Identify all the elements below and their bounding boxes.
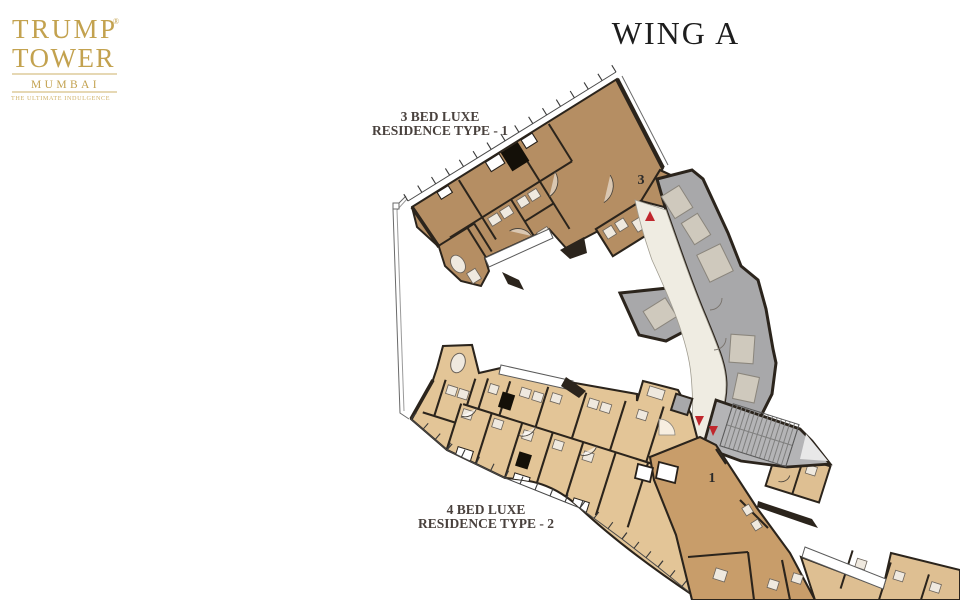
svg-text:THE ULTIMATE INDULGENCE: THE ULTIMATE INDULGENCE xyxy=(11,95,110,102)
svg-text:TRUMP: TRUMP xyxy=(12,14,118,44)
svg-text:4 BED LUXE: 4 BED LUXE xyxy=(447,502,526,517)
svg-text:TOWER: TOWER xyxy=(12,43,115,73)
svg-text:MUMBAI: MUMBAI xyxy=(31,79,100,91)
svg-text:RESIDENCE TYPE - 2: RESIDENCE TYPE - 2 xyxy=(418,516,554,531)
svg-text:RESIDENCE TYPE - 1: RESIDENCE TYPE - 1 xyxy=(372,123,508,138)
svg-text:WING A: WING A xyxy=(612,15,740,51)
svg-text:1: 1 xyxy=(709,471,716,486)
svg-text:3: 3 xyxy=(638,173,645,188)
svg-text:3 BED LUXE: 3 BED LUXE xyxy=(401,109,480,124)
svg-text:®: ® xyxy=(113,17,119,26)
